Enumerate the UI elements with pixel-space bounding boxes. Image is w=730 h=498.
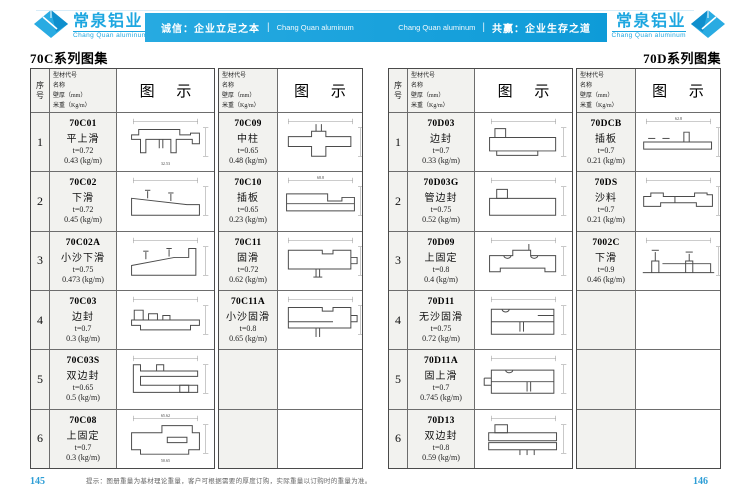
brand-diamond-icon [33, 9, 69, 45]
profile-drawing [277, 291, 362, 349]
profile-technical-drawing-icon: 65.6250.65 [119, 414, 212, 464]
profile-drawing [635, 172, 720, 230]
profile-thickness: t=0.75 [73, 265, 94, 274]
profile-weight: 0.59 (kg/m) [422, 453, 460, 462]
slogan-right-en: Chang Quan aluminum [398, 23, 475, 32]
profile-thickness: t=0.7 [598, 205, 615, 214]
brand-subtitle: Chang Quan aluminum [612, 31, 686, 40]
profile-info: 70D13双边封t=0.80.59 (kg/m) [407, 410, 474, 468]
profile-drawing [116, 350, 214, 408]
table-header-row: 序号型材代号名称壁厚（mm）米重（Kg/m）图 示 [31, 69, 214, 112]
profile-thickness: t=0.8 [433, 265, 450, 274]
profile-weight: 0.33 (kg/m) [422, 156, 460, 165]
profile-name: 固上滑 [425, 367, 458, 382]
profile-info [577, 350, 635, 408]
row-index: 6 [389, 410, 407, 468]
profile-weight: 0.21 (kg/m) [587, 156, 625, 165]
profile-technical-drawing-icon [477, 295, 570, 345]
profile-weight: 0.3 (kg/m) [66, 334, 100, 343]
profile-name: 插板 [237, 189, 259, 204]
profile-weight: 0.4 (kg/m) [424, 275, 458, 284]
profile-code: 70D03G [423, 178, 458, 188]
profile-code: 70C03S [67, 356, 100, 366]
profile-info: 70C02A小沙下滑t=0.750.473 (kg/m) [49, 232, 116, 290]
profile-info: 7002C下滑t=0.90.46 (kg/m) [577, 232, 635, 290]
profile-drawing [635, 410, 720, 468]
table-row: 670C08上固定t=0.70.3 (kg/m)65.6250.65 [31, 409, 214, 468]
profile-name: 管边封 [425, 189, 458, 204]
banner-right-slogan: Chang Quan aluminum | 共赢：企业生存之道 [398, 20, 591, 35]
info-column-header: 型材代号名称壁厚（mm）米重（Kg/m） [219, 69, 277, 112]
table-row: 70C11A小沙固滑t=0.80.65 (kg/m) [219, 290, 362, 349]
profile-info [219, 350, 277, 408]
profile-technical-drawing-icon [119, 295, 212, 345]
profile-thickness: t=0.7 [75, 443, 92, 452]
table-row: 70C09中柱t=0.650.48 (kg/m) [219, 112, 362, 171]
profile-drawing [635, 232, 720, 290]
profile-drawing [277, 410, 362, 468]
row-index: 1 [389, 113, 407, 171]
profile-drawing [277, 232, 362, 290]
profile-code: 70C09 [234, 119, 261, 129]
banner-divider: | [267, 22, 270, 33]
table-row [219, 349, 362, 408]
svg-text:65.62: 65.62 [161, 414, 170, 418]
profile-thickness: t=0.75 [431, 205, 452, 214]
profile-weight: 0.23 (kg/m) [229, 215, 267, 224]
profile-technical-drawing-icon [119, 236, 212, 286]
svg-text:50.65: 50.65 [161, 458, 170, 463]
profile-drawing: 62.8 [635, 113, 720, 171]
profile-thickness: t=0.65 [73, 383, 94, 392]
profile-name: 小沙下滑 [61, 249, 105, 264]
profile-name: 下滑 [72, 189, 94, 204]
svg-text:62.8: 62.8 [674, 117, 681, 121]
profile-info: 70D09上固定t=0.80.4 (kg/m) [407, 232, 474, 290]
profile-technical-drawing-icon [119, 176, 212, 226]
profile-drawing [635, 350, 720, 408]
profile-code: 70D03 [427, 119, 454, 129]
drawing-column-header: 图 示 [474, 69, 572, 112]
profile-drawing [474, 291, 572, 349]
banner-divider: | [482, 22, 485, 33]
header-banner: 诚信：企业立足之本 | Chang Quan aluminum Chang Qu… [145, 13, 607, 42]
profile-info: 70D11无沙固滑t=0.750.72 (kg/m) [407, 291, 474, 349]
profile-code: 70C02 [69, 178, 96, 188]
brand-name: 常泉铝业 [73, 14, 147, 30]
profile-name: 下滑 [595, 249, 617, 264]
profile-drawing [474, 232, 572, 290]
profile-table: 序号型材代号名称壁厚（mm）米重（Kg/m）图 示170D03边封t=0.70.… [388, 68, 573, 469]
table-row: 670D13双边封t=0.80.59 (kg/m) [389, 409, 572, 468]
row-index: 2 [31, 172, 49, 230]
profile-drawing: 65.6250.65 [116, 410, 214, 468]
profile-info: 70C01平上滑t=0.720.43 (kg/m) [49, 113, 116, 171]
brand-name: 常泉铝业 [612, 14, 686, 30]
profile-technical-drawing-icon [277, 117, 362, 167]
table-row: 470D11无沙固滑t=0.750.72 (kg/m) [389, 290, 572, 349]
profile-weight: 0.745 (kg/m) [420, 393, 462, 402]
table-header-row: 型材代号名称壁厚（mm）米重（Kg/m）图 示 [577, 69, 720, 112]
page-70c-tables: 序号型材代号名称壁厚（mm）米重（Kg/m）图 示170C01平上滑t=0.72… [30, 68, 363, 469]
table-row: 470C03边封t=0.70.3 (kg/m) [31, 290, 214, 349]
profile-info: 70C03S双边封t=0.650.5 (kg/m) [49, 350, 116, 408]
profile-code: 7002C [592, 238, 619, 248]
table-row: 7002C下滑t=0.90.46 (kg/m) [577, 231, 720, 290]
profile-info: 70D03G管边封t=0.750.52 (kg/m) [407, 172, 474, 230]
profile-info: 70C09中柱t=0.650.48 (kg/m) [219, 113, 277, 171]
page-title-70c: 70C系列图集 [30, 52, 363, 66]
profile-technical-drawing-icon [277, 236, 362, 286]
profile-table: 型材代号名称壁厚（mm）米重（Kg/m）图 示70DCB插板t=0.70.21 … [576, 68, 721, 469]
table-row: 270C02下滑t=0.720.45 (kg/m) [31, 171, 214, 230]
drawing-column-header: 图 示 [635, 69, 720, 112]
row-index: 2 [389, 172, 407, 230]
profile-info: 70DS沙料t=0.70.21 (kg/m) [577, 172, 635, 230]
profile-info: 70DCB插板t=0.70.21 (kg/m) [577, 113, 635, 171]
brand-diamond-icon [690, 9, 726, 45]
profile-thickness: t=0.9 [598, 265, 615, 274]
row-index: 4 [31, 291, 49, 349]
profile-name: 沙料 [595, 189, 617, 204]
index-column-header: 序号 [31, 69, 49, 112]
profile-weight: 0.62 (kg/m) [229, 275, 267, 284]
profile-code: 70D11A [424, 356, 458, 366]
profile-thickness: t=0.7 [433, 146, 450, 155]
profile-info [219, 410, 277, 468]
profile-code: 70DS [595, 178, 618, 188]
table-row: 570C03S双边封t=0.650.5 (kg/m) [31, 349, 214, 408]
profile-info: 70C11固滑t=0.720.62 (kg/m) [219, 232, 277, 290]
profile-name: 上固定 [67, 427, 100, 442]
profile-name: 小沙固滑 [226, 308, 270, 323]
profile-code: 70C03 [69, 297, 96, 307]
profile-technical-drawing-icon [119, 354, 212, 404]
info-column-header: 型材代号名称壁厚（mm）米重（Kg/m） [407, 69, 474, 112]
profile-technical-drawing-icon: 32.53 [119, 117, 212, 167]
profile-name: 中柱 [237, 130, 259, 145]
profile-code: 70C11A [231, 297, 265, 307]
table-row [577, 409, 720, 468]
profile-code: 70C08 [69, 416, 96, 426]
page-70c: 70C系列图集 序号型材代号名称壁厚（mm）米重（Kg/m）图 示170C01平… [30, 52, 363, 469]
table-row: 70DS沙料t=0.70.21 (kg/m) [577, 171, 720, 230]
profile-drawing [474, 113, 572, 171]
row-index: 1 [31, 113, 49, 171]
table-row [577, 290, 720, 349]
profile-name: 插板 [595, 130, 617, 145]
profile-code: 70DCB [590, 119, 621, 129]
profile-table: 序号型材代号名称壁厚（mm）米重（Kg/m）图 示170C01平上滑t=0.72… [30, 68, 215, 469]
profile-weight: 0.43 (kg/m) [64, 156, 102, 165]
profile-drawing [474, 172, 572, 230]
row-index: 6 [31, 410, 49, 468]
row-index: 3 [389, 232, 407, 290]
info-column-header: 型材代号名称壁厚（mm）米重（Kg/m） [577, 69, 635, 112]
profile-drawing: 32.53 [116, 113, 214, 171]
profile-weight: 0.52 (kg/m) [422, 215, 460, 224]
page-70d-tables: 序号型材代号名称壁厚（mm）米重（Kg/m）图 示170D03边封t=0.70.… [388, 68, 721, 469]
page-number-left: 145 [30, 476, 45, 487]
table-row: 70C11固滑t=0.720.62 (kg/m) [219, 231, 362, 290]
brand-subtitle: Chang Quan aluminum [73, 31, 147, 40]
table-row: 70DCB插板t=0.70.21 (kg/m)62.8 [577, 112, 720, 171]
profile-info [577, 291, 635, 349]
slogan-left-cn: 诚信：企业立足之本 [161, 20, 260, 35]
profile-thickness: t=0.7 [433, 383, 450, 392]
table-row: 170D03边封t=0.70.33 (kg/m) [389, 112, 572, 171]
profile-technical-drawing-icon [477, 117, 570, 167]
profile-weight: 0.5 (kg/m) [66, 393, 100, 402]
profile-weight: 0.72 (kg/m) [422, 334, 460, 343]
profile-drawing [116, 172, 214, 230]
profile-name: 固滑 [237, 249, 259, 264]
profile-name: 上固定 [425, 249, 458, 264]
profile-drawing [116, 232, 214, 290]
row-index: 5 [389, 350, 407, 408]
profile-info: 70D11A固上滑t=0.70.745 (kg/m) [407, 350, 474, 408]
profile-technical-drawing-icon [477, 176, 570, 226]
profile-technical-drawing-icon: 62.8 [635, 117, 720, 167]
brand-logo-right: 常泉铝业 Chang Quan aluminum [612, 9, 726, 45]
profile-drawing [474, 350, 572, 408]
profile-info: 70C08上固定t=0.70.3 (kg/m) [49, 410, 116, 468]
banner-left-slogan: 诚信：企业立足之本 | Chang Quan aluminum [161, 20, 354, 35]
profile-info: 70C03边封t=0.70.3 (kg/m) [49, 291, 116, 349]
profile-thickness: t=0.7 [75, 324, 92, 333]
profile-thickness: t=0.65 [238, 146, 259, 155]
table-row [577, 349, 720, 408]
footer-note: 提示：图册重量为基材理论重量，客户可根据需要的厚度订购，实际重量以订购时的重量为… [86, 475, 372, 485]
profile-technical-drawing-icon [635, 236, 720, 286]
profile-weight: 0.3 (kg/m) [66, 453, 100, 462]
profile-info: 70D03边封t=0.70.33 (kg/m) [407, 113, 474, 171]
table-row: 570D11A固上滑t=0.70.745 (kg/m) [389, 349, 572, 408]
profile-code: 70D11 [428, 297, 455, 307]
info-column-header: 型材代号名称壁厚（mm）米重（Kg/m） [49, 69, 116, 112]
profile-drawing [635, 291, 720, 349]
brand-logo-left: 常泉铝业 Chang Quan aluminum [33, 9, 147, 45]
table-row: 70C10插板t=0.650.23 (kg/m)68.8 [219, 171, 362, 230]
profile-name: 平上滑 [67, 130, 100, 145]
profile-code: 70C10 [234, 178, 261, 188]
profile-info [577, 410, 635, 468]
profile-code: 70D13 [427, 416, 454, 426]
profile-code: 70D09 [427, 238, 454, 248]
slogan-left-en: Chang Quan aluminum [277, 23, 354, 32]
table-header-row: 序号型材代号名称壁厚（mm）米重（Kg/m）图 示 [389, 69, 572, 112]
drawing-column-header: 图 示 [116, 69, 214, 112]
svg-text:68.8: 68.8 [316, 176, 323, 180]
profile-technical-drawing-icon [277, 295, 362, 345]
svg-text:32.53: 32.53 [161, 161, 170, 166]
profile-drawing [116, 291, 214, 349]
profile-thickness: t=0.8 [433, 443, 450, 452]
profile-technical-drawing-icon [635, 176, 720, 226]
profile-weight: 0.473 (kg/m) [62, 275, 104, 284]
row-index: 5 [31, 350, 49, 408]
profile-drawing [277, 113, 362, 171]
profile-technical-drawing-icon [477, 354, 570, 404]
profile-technical-drawing-icon [477, 414, 570, 464]
profile-table: 型材代号名称壁厚（mm）米重（Kg/m）图 示70C09中柱t=0.650.48… [218, 68, 363, 469]
profile-thickness: t=0.7 [598, 146, 615, 155]
drawing-column-header: 图 示 [277, 69, 362, 112]
profile-name: 无沙固滑 [419, 308, 463, 323]
table-row: 370C02A小沙下滑t=0.750.473 (kg/m) [31, 231, 214, 290]
table-row [219, 409, 362, 468]
profile-thickness: t=0.75 [431, 324, 452, 333]
table-row: 370D09上固定t=0.80.4 (kg/m) [389, 231, 572, 290]
profile-info: 70C11A小沙固滑t=0.80.65 (kg/m) [219, 291, 277, 349]
profile-weight: 0.46 (kg/m) [587, 275, 625, 284]
profile-weight: 0.21 (kg/m) [587, 215, 625, 224]
slogan-right-cn: 共赢：企业生存之道 [492, 20, 591, 35]
profile-technical-drawing-icon: 68.8 [277, 176, 362, 226]
table-row: 170C01平上滑t=0.720.43 (kg/m)32.53 [31, 112, 214, 171]
profile-drawing [474, 410, 572, 468]
table-header-row: 型材代号名称壁厚（mm）米重（Kg/m）图 示 [219, 69, 362, 112]
profile-code: 70C02A [66, 238, 101, 248]
profile-thickness: t=0.8 [240, 324, 257, 333]
profile-code: 70C01 [69, 119, 96, 129]
profile-info: 70C02下滑t=0.720.45 (kg/m) [49, 172, 116, 230]
profile-weight: 0.45 (kg/m) [64, 215, 102, 224]
page-number-right: 146 [693, 476, 708, 487]
profile-drawing [277, 350, 362, 408]
profile-thickness: t=0.72 [73, 205, 94, 214]
profile-code: 70C11 [235, 238, 262, 248]
profile-weight: 0.65 (kg/m) [229, 334, 267, 343]
profile-thickness: t=0.65 [238, 205, 259, 214]
index-column-header: 序号 [389, 69, 407, 112]
row-index: 4 [389, 291, 407, 349]
profile-name: 双边封 [67, 367, 100, 382]
profile-name: 边封 [430, 130, 452, 145]
table-row: 270D03G管边封t=0.750.52 (kg/m) [389, 171, 572, 230]
profile-weight: 0.48 (kg/m) [229, 156, 267, 165]
profile-thickness: t=0.72 [73, 146, 94, 155]
profile-name: 边封 [72, 308, 94, 323]
profile-thickness: t=0.72 [238, 265, 259, 274]
profile-technical-drawing-icon [477, 236, 570, 286]
profile-info: 70C10插板t=0.650.23 (kg/m) [219, 172, 277, 230]
page-70d: 70D系列图集 序号型材代号名称壁厚（mm）米重（Kg/m）图 示170D03边… [388, 52, 721, 469]
profile-drawing: 68.8 [277, 172, 362, 230]
row-index: 3 [31, 232, 49, 290]
profile-name: 双边封 [425, 427, 458, 442]
page-title-70d: 70D系列图集 [388, 52, 721, 66]
